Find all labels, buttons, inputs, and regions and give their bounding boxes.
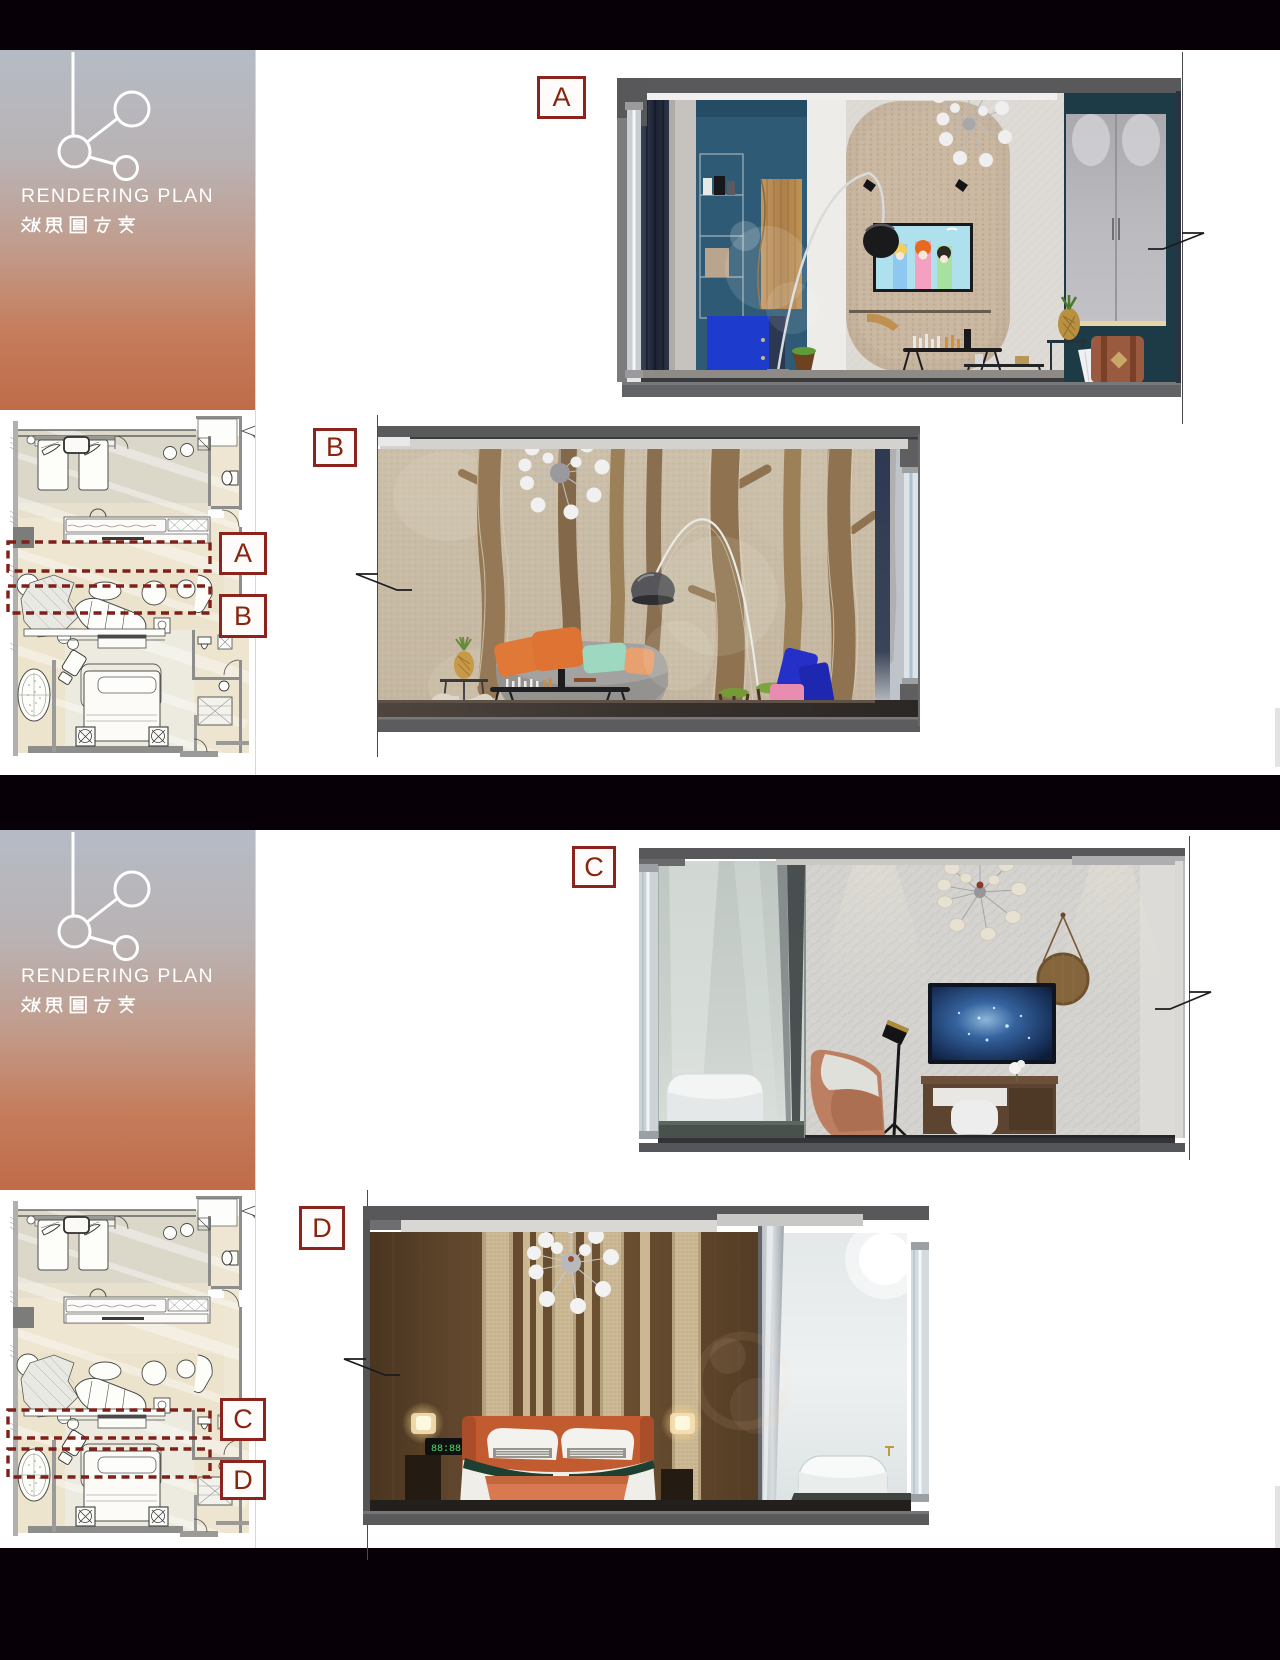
svg-text:RENDERING PLAN: RENDERING PLAN bbox=[21, 965, 214, 987]
svg-text:88:88: 88:88 bbox=[431, 1444, 461, 1455]
svg-text:RENDERING PLAN: RENDERING PLAN bbox=[21, 185, 214, 207]
